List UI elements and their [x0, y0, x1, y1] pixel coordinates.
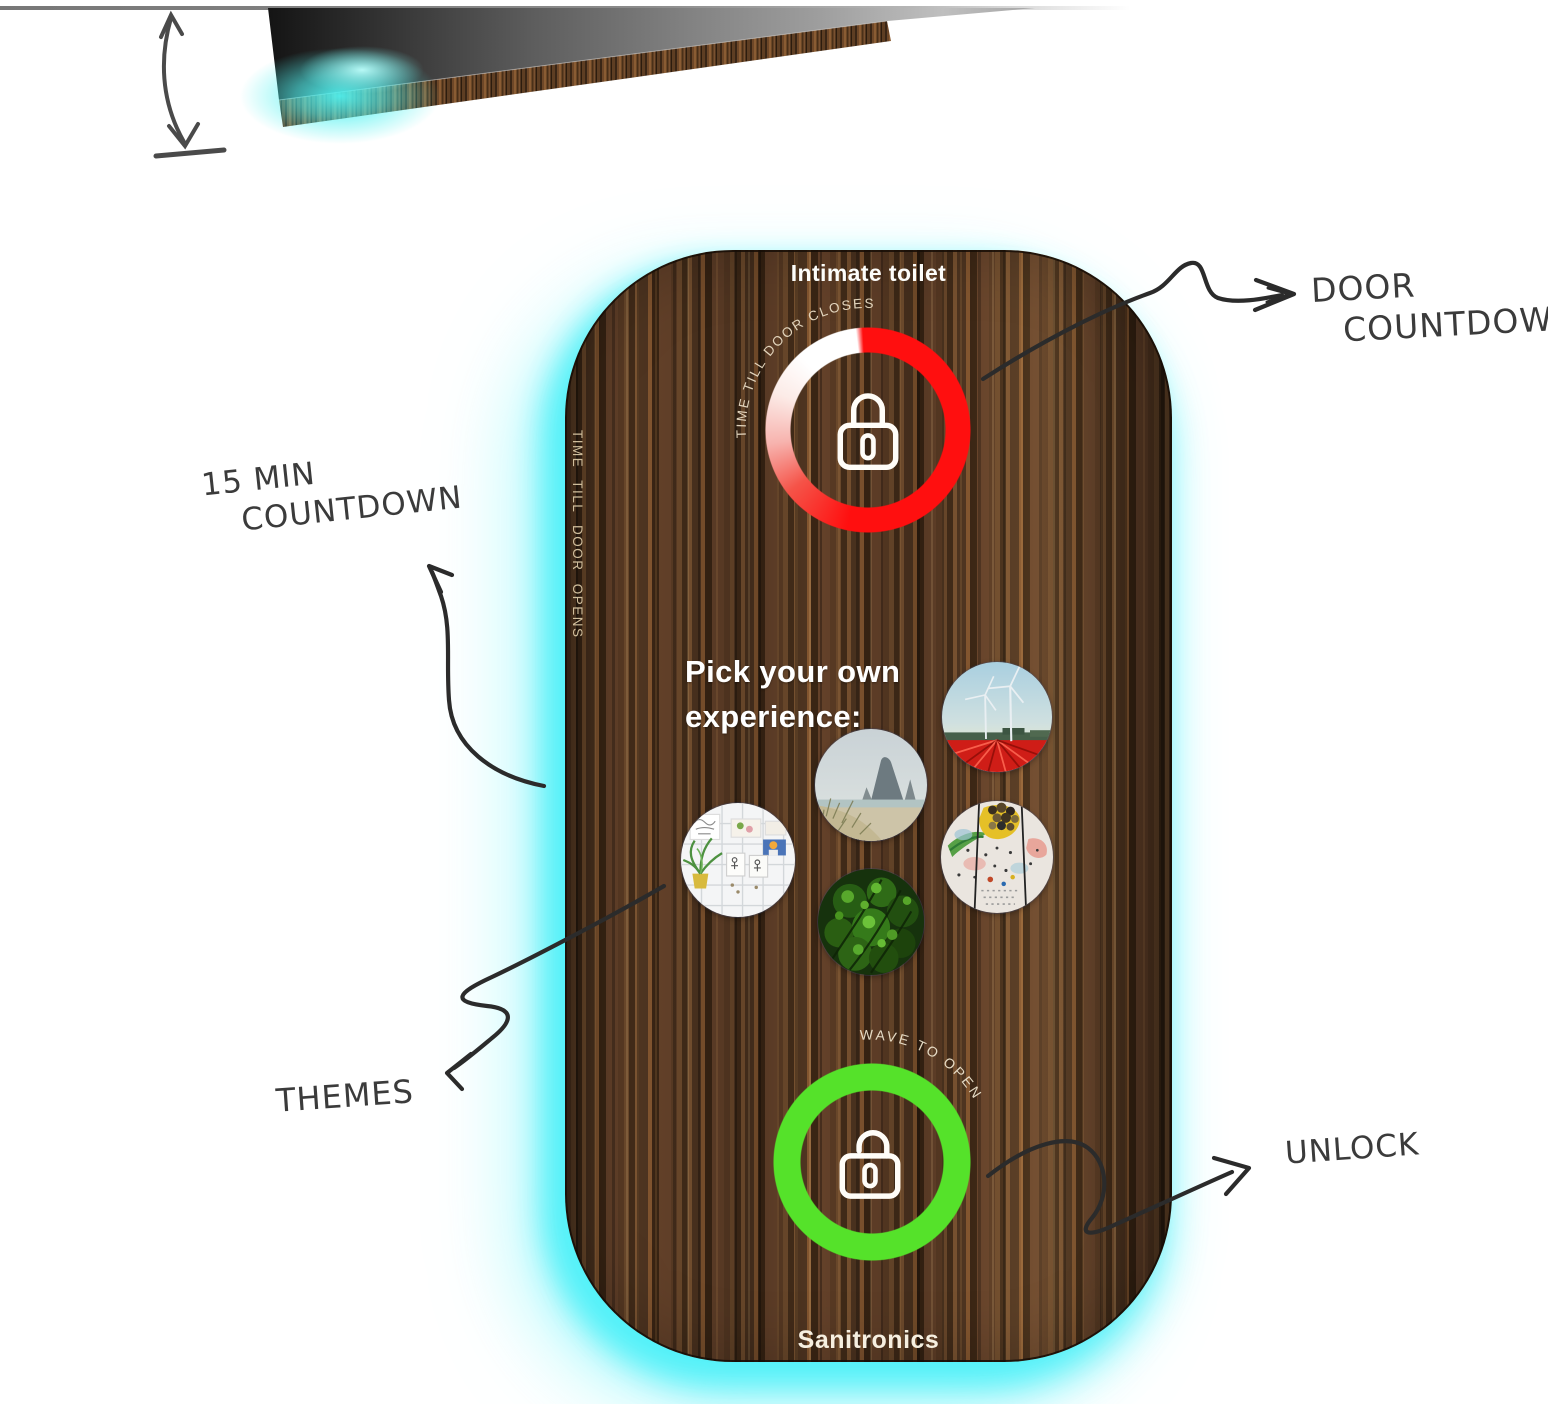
experience-heading: Pick your own experience:	[685, 650, 900, 740]
brand-sanitronics: Sanitronics	[565, 1326, 1172, 1355]
theme-beach-rock[interactable]	[815, 729, 927, 841]
annotation-15min-countdown: 15 MIN COUNTDOWN	[200, 440, 465, 544]
cyan-glow-core	[300, 46, 424, 94]
door-control-panel: Intimate toilet TIME TILL DOOR CLOSES WA…	[565, 250, 1172, 1362]
experience-heading-line1: Pick your own	[685, 650, 900, 695]
annotation-door-countdown: DOOR COUNTDOWN	[1310, 256, 1548, 352]
door-slab-side-view	[0, 0, 1200, 210]
height-dimension-arrow	[156, 15, 224, 156]
theme-art-collage[interactable]	[941, 801, 1053, 913]
annotation-unlock: UNLOCK	[1284, 1125, 1421, 1173]
svg-text:TIME TILL DOOR CLOSES: TIME TILL DOOR CLOSES	[734, 296, 876, 438]
wave-to-open-ring[interactable]	[772, 1062, 972, 1262]
annotation-themes: THEMES	[275, 1071, 415, 1121]
design-sketch-canvas: Intimate toilet TIME TILL DOOR CLOSES WA…	[0, 0, 1548, 1404]
theme-windmills-tulip-field[interactable]	[942, 662, 1052, 772]
countdown-curved-label: TIME TILL DOOR CLOSES	[734, 296, 876, 438]
side-label-time-till-door-opens: TIME TILL DOOR OPENS	[570, 430, 585, 639]
theme-smile-cartoon-board[interactable]	[681, 803, 795, 917]
arrow-to-15min-countdown	[429, 566, 544, 786]
theme-jungle[interactable]	[818, 869, 924, 975]
